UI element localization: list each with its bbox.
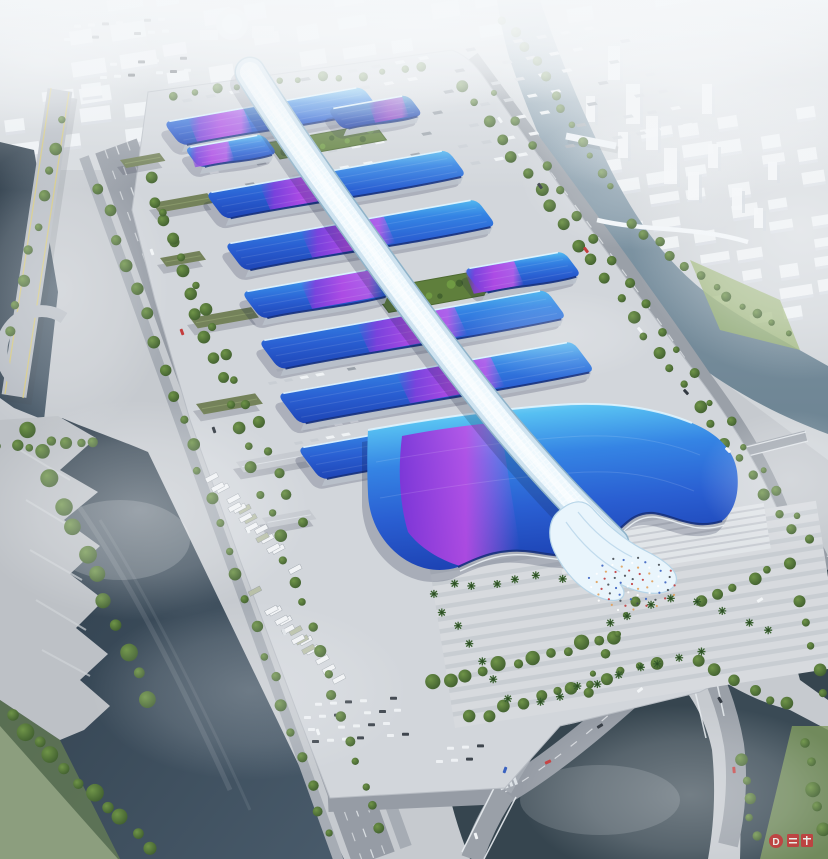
palm-tree-crown — [670, 597, 672, 599]
person — [601, 565, 603, 567]
fog-wisp — [150, 62, 510, 122]
tree — [112, 809, 128, 825]
tree — [208, 323, 216, 331]
palm-tree-crown — [700, 650, 702, 652]
tree — [574, 635, 589, 650]
palm-tree-crown — [656, 663, 658, 665]
tree — [572, 240, 585, 253]
person — [673, 594, 675, 596]
person — [631, 583, 633, 585]
tree — [586, 681, 594, 689]
person — [619, 594, 621, 596]
tree — [584, 688, 594, 698]
palm-tree-crown — [626, 615, 628, 617]
parked-car — [477, 744, 484, 747]
palm-tree-crown — [678, 657, 680, 659]
tree — [86, 784, 104, 802]
palm-tree-crown — [767, 629, 769, 631]
person — [670, 570, 672, 572]
courtyard-tree — [447, 280, 456, 289]
person — [651, 580, 653, 582]
person — [620, 582, 622, 584]
person — [673, 584, 675, 586]
parked-car — [436, 760, 443, 763]
parked-car — [466, 758, 473, 761]
tree — [143, 842, 156, 855]
tree — [807, 642, 814, 649]
tree — [706, 400, 712, 406]
tree — [41, 746, 58, 763]
fog-bank — [520, 110, 760, 250]
palm-tree-crown — [468, 642, 470, 644]
tree — [749, 572, 762, 585]
tree — [680, 380, 687, 387]
tree — [514, 659, 523, 668]
tree — [17, 723, 35, 741]
tree — [290, 577, 301, 588]
palm-tree-crown — [496, 583, 498, 585]
person — [645, 605, 647, 607]
tree — [641, 299, 650, 308]
person — [667, 589, 669, 591]
tree — [708, 663, 721, 676]
courtyard-tree — [437, 293, 442, 298]
palm-tree-crown — [696, 600, 698, 602]
person — [617, 609, 619, 611]
palm-tree-crown — [596, 683, 598, 685]
tree — [168, 391, 179, 402]
tree — [546, 648, 556, 658]
tree — [313, 807, 323, 817]
person — [597, 593, 599, 595]
person — [631, 562, 633, 564]
tree — [625, 278, 635, 288]
tree — [590, 671, 596, 677]
person — [614, 577, 616, 579]
tree — [373, 823, 384, 834]
parked-car — [451, 759, 458, 762]
person — [645, 598, 647, 600]
palm-tree-crown — [470, 585, 472, 587]
tree — [615, 631, 621, 637]
tree — [607, 256, 617, 266]
tree — [781, 697, 794, 710]
tree — [750, 685, 761, 696]
person — [623, 559, 625, 561]
tree — [102, 802, 113, 813]
tree — [564, 647, 573, 656]
tree — [110, 619, 122, 631]
palm-tree-crown — [481, 660, 483, 662]
tree — [630, 597, 640, 607]
person — [596, 581, 598, 583]
tree — [200, 303, 213, 316]
tree — [230, 376, 238, 384]
person — [607, 583, 609, 585]
palm-tree-crown — [650, 604, 652, 606]
person — [611, 604, 613, 606]
tree — [227, 400, 235, 408]
watermark: D — [769, 834, 813, 848]
tree — [218, 372, 229, 383]
person — [627, 591, 629, 593]
watermark-glyph — [787, 834, 799, 847]
parked-car — [447, 747, 454, 750]
palm-tree-crown — [539, 701, 541, 703]
person — [639, 573, 641, 575]
person — [611, 564, 613, 566]
person — [637, 594, 639, 596]
tree — [766, 696, 774, 704]
palm-tree-crown — [640, 666, 642, 668]
tree — [794, 595, 806, 607]
person — [637, 588, 639, 590]
tree — [601, 649, 611, 659]
tree — [601, 673, 613, 685]
watermark-glyph-detail — [789, 842, 797, 844]
tree — [585, 254, 596, 265]
tree — [594, 636, 604, 646]
tree — [518, 698, 529, 709]
tree — [599, 273, 610, 284]
tree — [308, 780, 319, 791]
person — [605, 571, 607, 573]
watermark-letter: D — [772, 837, 779, 848]
palm-tree-crown — [559, 695, 561, 697]
palm-tree-crown — [561, 578, 563, 580]
palm-tree-crown — [576, 685, 578, 687]
tree — [425, 674, 440, 689]
person — [637, 567, 639, 569]
tree — [241, 400, 250, 409]
tree — [35, 736, 46, 747]
person — [642, 579, 644, 581]
tree — [221, 349, 232, 360]
exhibition-center-aerial-render: D — [0, 0, 828, 859]
person — [598, 600, 600, 602]
person — [627, 585, 629, 587]
person — [624, 575, 626, 577]
watermark-glyph-detail — [789, 838, 797, 840]
tree — [73, 779, 83, 789]
tree — [695, 401, 708, 414]
person — [658, 592, 660, 594]
tree — [58, 763, 69, 774]
tree — [690, 368, 700, 378]
tree — [665, 364, 673, 372]
tree — [444, 674, 458, 688]
tree — [763, 566, 771, 574]
tree — [192, 282, 199, 289]
person — [657, 585, 659, 587]
tree — [728, 675, 739, 686]
person — [612, 558, 614, 560]
palm-tree-crown — [433, 593, 435, 595]
palm-tree-crown — [618, 674, 620, 676]
palm-tree-crown — [609, 622, 611, 624]
person — [615, 587, 617, 589]
tree — [483, 710, 495, 722]
palm-tree-crown — [453, 582, 455, 584]
person — [664, 597, 666, 599]
person — [658, 575, 660, 577]
tree — [368, 801, 377, 810]
person — [658, 564, 660, 566]
person — [590, 586, 592, 588]
person — [632, 578, 634, 580]
tree — [160, 365, 171, 376]
palm-tree-crown — [514, 578, 516, 580]
person — [648, 567, 650, 569]
person — [632, 608, 634, 610]
person — [646, 586, 648, 588]
tree — [189, 308, 201, 320]
tree — [525, 651, 539, 665]
parked-car — [462, 746, 469, 749]
person — [608, 598, 610, 600]
tree — [177, 264, 190, 277]
tree — [458, 669, 471, 682]
palm-tree-crown — [507, 698, 509, 700]
aerial-render-stage: D — [0, 0, 828, 859]
person — [660, 570, 662, 572]
palm-tree-crown — [535, 574, 537, 576]
person — [604, 578, 606, 580]
parked-car — [402, 733, 409, 736]
person — [600, 588, 602, 590]
palm-tree-crown — [441, 611, 443, 613]
tree — [253, 416, 265, 428]
palm-tree-crown — [457, 625, 459, 627]
tree — [159, 209, 167, 217]
person — [596, 573, 598, 575]
person — [654, 599, 656, 601]
tree — [198, 331, 211, 344]
person — [644, 561, 646, 563]
tree — [133, 828, 144, 839]
tree — [654, 347, 666, 359]
person — [664, 581, 666, 583]
tree — [7, 709, 19, 721]
palm-tree-crown — [492, 678, 494, 680]
tree — [712, 589, 723, 600]
fog-bank — [90, 600, 410, 780]
tree — [184, 288, 197, 301]
tree — [784, 558, 796, 570]
watermark-glyph-detail — [806, 836, 808, 845]
person — [619, 600, 621, 602]
tree — [673, 346, 680, 353]
tree — [167, 233, 179, 245]
tree — [802, 619, 810, 627]
person — [624, 605, 626, 607]
tree — [814, 664, 827, 677]
tree — [706, 420, 714, 428]
person — [621, 565, 623, 567]
tree — [693, 655, 705, 667]
fog-wisp — [460, 290, 660, 380]
tree — [363, 783, 370, 790]
tree — [463, 710, 476, 723]
person — [637, 557, 639, 559]
palm-tree-crown — [748, 621, 750, 623]
courtyard-tree — [426, 292, 433, 299]
person — [614, 571, 616, 573]
tree — [208, 352, 219, 363]
tree — [478, 666, 488, 676]
tree — [177, 253, 185, 261]
tree — [728, 584, 736, 592]
person — [636, 602, 638, 604]
palm-tree-crown — [721, 610, 723, 612]
person — [628, 569, 630, 571]
person — [669, 576, 671, 578]
tree — [490, 656, 505, 671]
person — [648, 572, 650, 574]
tree — [325, 829, 332, 836]
person — [630, 598, 632, 600]
tree — [819, 689, 827, 697]
person — [656, 605, 658, 607]
person — [609, 592, 611, 594]
person — [648, 592, 650, 594]
person — [588, 577, 590, 579]
